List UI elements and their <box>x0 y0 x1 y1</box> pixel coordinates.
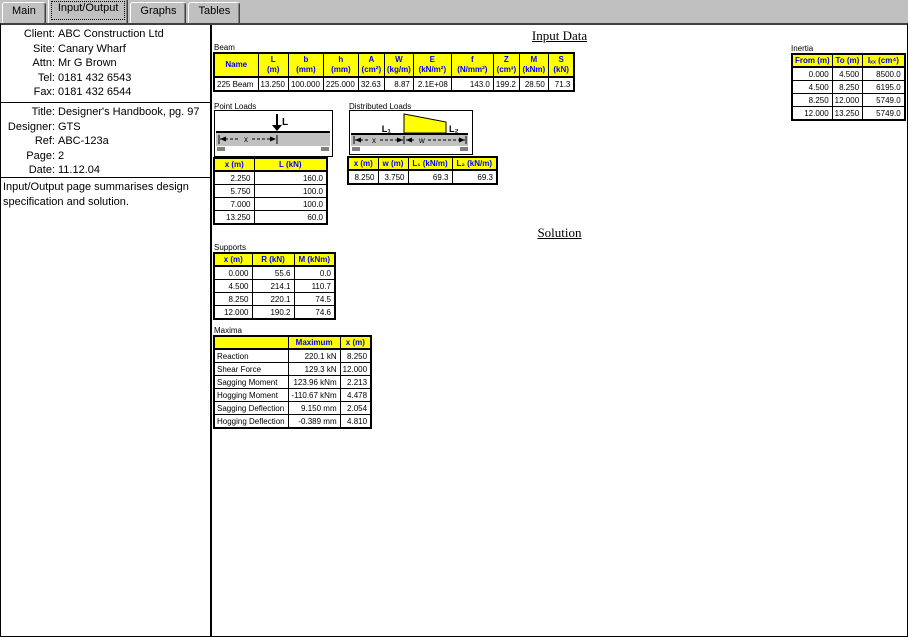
field-label: Attn: <box>3 56 55 71</box>
cell: 13.250 <box>214 211 254 225</box>
contact-box: Client:ABC Construction Ltd Site:Canary … <box>1 25 210 103</box>
col-unit: (cm³) <box>496 65 517 75</box>
cell: 7.000 <box>214 198 254 211</box>
beam-col-A: A(cm²) <box>358 53 384 77</box>
field-label: Tel: <box>3 71 55 86</box>
table-row: 0.0004.5008500.0 <box>792 67 905 81</box>
cell: 8500.0 <box>863 67 905 81</box>
distributed-loads-diagram: L₁ L₂ x w <box>349 110 473 155</box>
table-row: 8.250220.174.5 <box>214 293 335 306</box>
table-row: Shear Force129.3 kN12.000 <box>214 363 371 376</box>
tab-tables[interactable]: Tables <box>188 2 240 23</box>
maxima-table: Maximum x (m) Reaction220.1 kN8.250 Shea… <box>213 335 372 429</box>
beam-col-M: M(kNm) <box>519 53 548 77</box>
cell: 2.213 <box>340 376 371 389</box>
cell: 12.000 <box>214 306 252 320</box>
cell: 129.3 kN <box>288 363 340 376</box>
col-unit: (cm²) <box>361 65 382 75</box>
field-attn: Attn:Mr G Brown <box>3 56 208 71</box>
cell: Sagging Moment <box>214 376 288 389</box>
table-row: Reaction220.1 kN8.250 <box>214 349 371 363</box>
cell: 32.63 <box>358 77 384 91</box>
load-right-label: L₂ <box>449 124 459 134</box>
cell: Sagging Deflection <box>214 402 288 415</box>
cell: 100.0 <box>254 198 327 211</box>
cell: Reaction <box>214 349 288 363</box>
cell: 100.000 <box>288 77 323 91</box>
dim-label-x: x <box>372 136 376 145</box>
beam-col-E: E(kN/m²) <box>413 53 451 77</box>
col-unit: (mm) <box>291 65 321 75</box>
inertia-col-ixx: Iₓₓ (cm⁴) <box>863 54 905 67</box>
cell: 8.250 <box>348 170 378 184</box>
table-row: Hogging Moment-110.67 kNm4.478 <box>214 389 371 402</box>
cell: 143.0 <box>451 77 493 91</box>
cell: 190.2 <box>252 306 294 320</box>
cell: 123.96 kNm <box>288 376 340 389</box>
field-value: Mr G Brown <box>58 56 117 71</box>
field-date: Date:11.12.04 <box>3 163 208 178</box>
col-symbol: Name <box>217 60 256 70</box>
supports-col-m: M (kNm) <box>294 253 335 266</box>
beam-top-edge <box>351 133 468 135</box>
col-unit: (mm) <box>326 65 356 75</box>
beam-table: Name L(m) b(mm) h(mm) A(cm²) W(kg/m) E(k… <box>213 52 575 92</box>
cell: 4.810 <box>340 415 371 429</box>
col-symbol: M <box>522 55 546 65</box>
field-label: Designer: <box>3 120 55 135</box>
cell: 225 Beam <box>214 77 258 91</box>
cell: 220.1 <box>252 293 294 306</box>
supports-header-row: x (m) R (kN) M (kNm) <box>214 253 335 266</box>
cell: 60.0 <box>254 211 327 225</box>
field-label: Site: <box>3 42 55 57</box>
col-symbol: b <box>291 55 321 65</box>
table-row: Sagging Deflection9.150 mm2.054 <box>214 402 371 415</box>
inertia-section-label: Inertia <box>791 44 813 53</box>
maxima-header-row: Maximum x (m) <box>214 336 371 349</box>
maxima-col-maximum: Maximum <box>288 336 340 349</box>
support-icon <box>460 147 468 151</box>
col-unit: (kg/m) <box>387 65 411 75</box>
col-unit: (kNm) <box>522 65 546 75</box>
col-unit: (m) <box>261 65 286 75</box>
supports-col-x: x (m) <box>214 253 252 266</box>
cell: -110.67 kNm <box>288 389 340 402</box>
beam-data-row: 225 Beam 13.250 100.000 225.000 32.63 8.… <box>214 77 574 91</box>
table-row: 4.500214.1110.7 <box>214 280 335 293</box>
cell: 69.3 <box>452 170 497 184</box>
field-label: Page: <box>3 149 55 164</box>
field-tel: Tel:0181 432 6543 <box>3 71 208 86</box>
beam-col-L: L(m) <box>258 53 288 77</box>
beam-col-W: W(kg/m) <box>384 53 413 77</box>
maxima-col-x: x (m) <box>340 336 371 349</box>
support-icon <box>321 147 329 151</box>
cell: 8.250 <box>214 293 252 306</box>
table-row: 12.00013.2505749.0 <box>792 107 905 121</box>
cell: 214.1 <box>252 280 294 293</box>
field-value: 11.12.04 <box>58 163 100 178</box>
table-row: 13.25060.0 <box>214 211 327 225</box>
down-arrow-head-icon <box>272 125 282 131</box>
point-loads-diagram-svg: L x <box>215 111 332 156</box>
dist-col-l2: L₂ (kN/m) <box>452 157 497 170</box>
inertia-table: From (m) To (m) Iₓₓ (cm⁴) 0.0004.5008500… <box>791 53 906 121</box>
support-icon <box>352 147 360 151</box>
cell: 160.0 <box>254 171 327 185</box>
col-symbol: h <box>326 55 356 65</box>
heading-solution: Solution <box>212 225 907 241</box>
col-unit: (kN/m²) <box>416 65 449 75</box>
dist-col-w: w (m) <box>378 157 408 170</box>
tab-input-output[interactable]: Input/Output <box>48 0 129 23</box>
cell: 71.3 <box>548 77 574 91</box>
cell: 2.250 <box>214 171 254 185</box>
maxima-col-blank <box>214 336 288 349</box>
cell: 13.250 <box>258 77 288 91</box>
cell: 8.250 <box>792 94 832 107</box>
support-icon <box>217 147 225 151</box>
field-label: Fax: <box>3 85 55 100</box>
field-value: 2 <box>58 149 64 164</box>
distributed-load-shape <box>404 114 446 133</box>
main-area: Input Data Beam Name L(m) b(mm) h(mm) A(… <box>212 25 907 636</box>
field-value: ABC-123a <box>58 134 109 149</box>
beam-section-label: Beam <box>214 43 235 52</box>
beam-col-Z: Z(cm³) <box>493 53 519 77</box>
cell: 8.250 <box>340 349 371 363</box>
cell: 0.000 <box>214 266 252 280</box>
beam-top-edge <box>216 131 330 133</box>
distributed-loads-table: x (m) w (m) L₁ (kN/m) L₂ (kN/m) 8.250 3.… <box>347 156 498 185</box>
table-row: 8.25012.0005749.0 <box>792 94 905 107</box>
cell: 12.000 <box>340 363 371 376</box>
table-row: 7.000100.0 <box>214 198 327 211</box>
beam-header-row: Name L(m) b(mm) h(mm) A(cm²) W(kg/m) E(k… <box>214 53 574 77</box>
beam-col-f: f(N/mm²) <box>451 53 493 77</box>
col-symbol: E <box>416 55 449 65</box>
cell: 8.87 <box>384 77 413 91</box>
inertia-col-to: To (m) <box>832 54 862 67</box>
cell: 110.7 <box>294 280 335 293</box>
cell: 2.054 <box>340 402 371 415</box>
beam-col-b: b(mm) <box>288 53 323 77</box>
table-row: Sagging Moment123.96 kNm2.213 <box>214 376 371 389</box>
cell: 13.250 <box>832 107 862 121</box>
field-value: ABC Construction Ltd <box>58 27 164 42</box>
table-row: 5.750100.0 <box>214 185 327 198</box>
tab-bar: Main Input/Output Graphs Tables <box>0 0 908 23</box>
point-col-x: x (m) <box>214 158 254 171</box>
col-unit: (N/mm²) <box>454 65 491 75</box>
col-unit: (kN) <box>551 65 572 75</box>
beam-col-name: Name <box>214 53 258 77</box>
cell: Hogging Moment <box>214 389 288 402</box>
table-row: 8.250 3.750 69.3 69.3 <box>348 170 497 184</box>
col-symbol: f <box>454 55 491 65</box>
distributed-loads-header-row: x (m) w (m) L₁ (kN/m) L₂ (kN/m) <box>348 157 497 170</box>
cell: 9.150 mm <box>288 402 340 415</box>
table-row: 12.000190.274.6 <box>214 306 335 320</box>
dist-col-x: x (m) <box>348 157 378 170</box>
heading-input-data: Input Data <box>212 28 907 44</box>
field-site: Site:Canary Wharf <box>3 42 208 57</box>
supports-section-label: Supports <box>214 243 246 252</box>
field-value: 0181 432 6543 <box>58 71 131 86</box>
field-label: Client: <box>3 27 55 42</box>
cell: 28.50 <box>519 77 548 91</box>
cell: 4.500 <box>214 280 252 293</box>
cell: 5.750 <box>214 185 254 198</box>
cell: 199.2 <box>493 77 519 91</box>
cell: 100.0 <box>254 185 327 198</box>
supports-table: x (m) R (kN) M (kNm) 0.00055.60.0 4.5002… <box>213 252 336 320</box>
cell: 74.5 <box>294 293 335 306</box>
point-loads-header-row: x (m) L (kN) <box>214 158 327 171</box>
cell: 5749.0 <box>863 94 905 107</box>
field-client: Client:ABC Construction Ltd <box>3 27 208 42</box>
col-symbol: A <box>361 55 382 65</box>
tab-main[interactable]: Main <box>2 2 46 23</box>
beam-col-S: S(kN) <box>548 53 574 77</box>
load-left-label: L₁ <box>382 124 391 134</box>
dim-label-x: x <box>244 135 248 144</box>
cell: 12.000 <box>792 107 832 121</box>
load-label: L <box>282 117 288 128</box>
cell: 12.000 <box>832 94 862 107</box>
left-panel: Client:ABC Construction Ltd Site:Canary … <box>1 25 212 636</box>
distributed-loads-diagram-svg: L₁ L₂ x w <box>350 111 472 154</box>
cell: 74.6 <box>294 306 335 320</box>
field-ref: Ref:ABC-123a <box>3 134 208 149</box>
supports-col-r: R (kN) <box>252 253 294 266</box>
cell: 225.000 <box>323 77 358 91</box>
field-value: 0181 432 6544 <box>58 85 131 100</box>
note-text: Input/Output page summarises design spec… <box>3 180 208 210</box>
point-loads-table: x (m) L (kN) 2.250160.0 5.750100.0 7.000… <box>213 157 328 225</box>
col-symbol: W <box>387 55 411 65</box>
beam-col-h: h(mm) <box>323 53 358 77</box>
field-designer: Designer:GTS <box>3 120 208 135</box>
cell: 4.478 <box>340 389 371 402</box>
cell: 55.6 <box>252 266 294 280</box>
cell: 8.250 <box>832 81 862 94</box>
point-col-L: L (kN) <box>254 158 327 171</box>
cell: 4.500 <box>832 67 862 81</box>
cell: 5749.0 <box>863 107 905 121</box>
cell: -0.389 mm <box>288 415 340 429</box>
maxima-section-label: Maxima <box>214 326 242 335</box>
cell: Hogging Deflection <box>214 415 288 429</box>
inertia-header-row: From (m) To (m) Iₓₓ (cm⁴) <box>792 54 905 67</box>
table-row: 2.250160.0 <box>214 171 327 185</box>
point-loads-diagram: L x <box>214 110 333 157</box>
tab-graphs[interactable]: Graphs <box>130 2 186 23</box>
cell: 0.0 <box>294 266 335 280</box>
notes-box: Input/Output page summarises design spec… <box>1 178 210 636</box>
table-row: 0.00055.60.0 <box>214 266 335 280</box>
cell: 3.750 <box>378 170 408 184</box>
field-page: Page:2 <box>3 149 208 164</box>
field-fax: Fax:0181 432 6544 <box>3 85 208 100</box>
dist-col-l1: L₁ (kN/m) <box>408 157 452 170</box>
cell: 2.1E+08 <box>413 77 451 91</box>
cell: 4.500 <box>792 81 832 94</box>
dim-label-w: w <box>418 136 425 145</box>
inertia-col-from: From (m) <box>792 54 832 67</box>
field-value: Canary Wharf <box>58 42 126 57</box>
field-value: GTS <box>58 120 81 135</box>
field-title: Title:Designer's Handbook, pg. 97 <box>3 105 208 120</box>
cell: 0.000 <box>792 67 832 81</box>
cell: Shear Force <box>214 363 288 376</box>
field-label: Title: <box>3 105 55 120</box>
page-content: Client:ABC Construction Ltd Site:Canary … <box>0 23 908 637</box>
col-symbol: Z <box>496 55 517 65</box>
table-row: 4.5008.2506195.0 <box>792 81 905 94</box>
col-symbol: L <box>261 55 286 65</box>
field-label: Date: <box>3 163 55 178</box>
project-box: Title:Designer's Handbook, pg. 97 Design… <box>1 103 210 178</box>
field-label: Ref: <box>3 134 55 149</box>
table-row: Hogging Deflection-0.389 mm4.810 <box>214 415 371 429</box>
cell: 6195.0 <box>863 81 905 94</box>
cell: 69.3 <box>408 170 452 184</box>
cell: 220.1 kN <box>288 349 340 363</box>
col-symbol: S <box>551 55 572 65</box>
field-value: Designer's Handbook, pg. 97 <box>58 105 200 120</box>
